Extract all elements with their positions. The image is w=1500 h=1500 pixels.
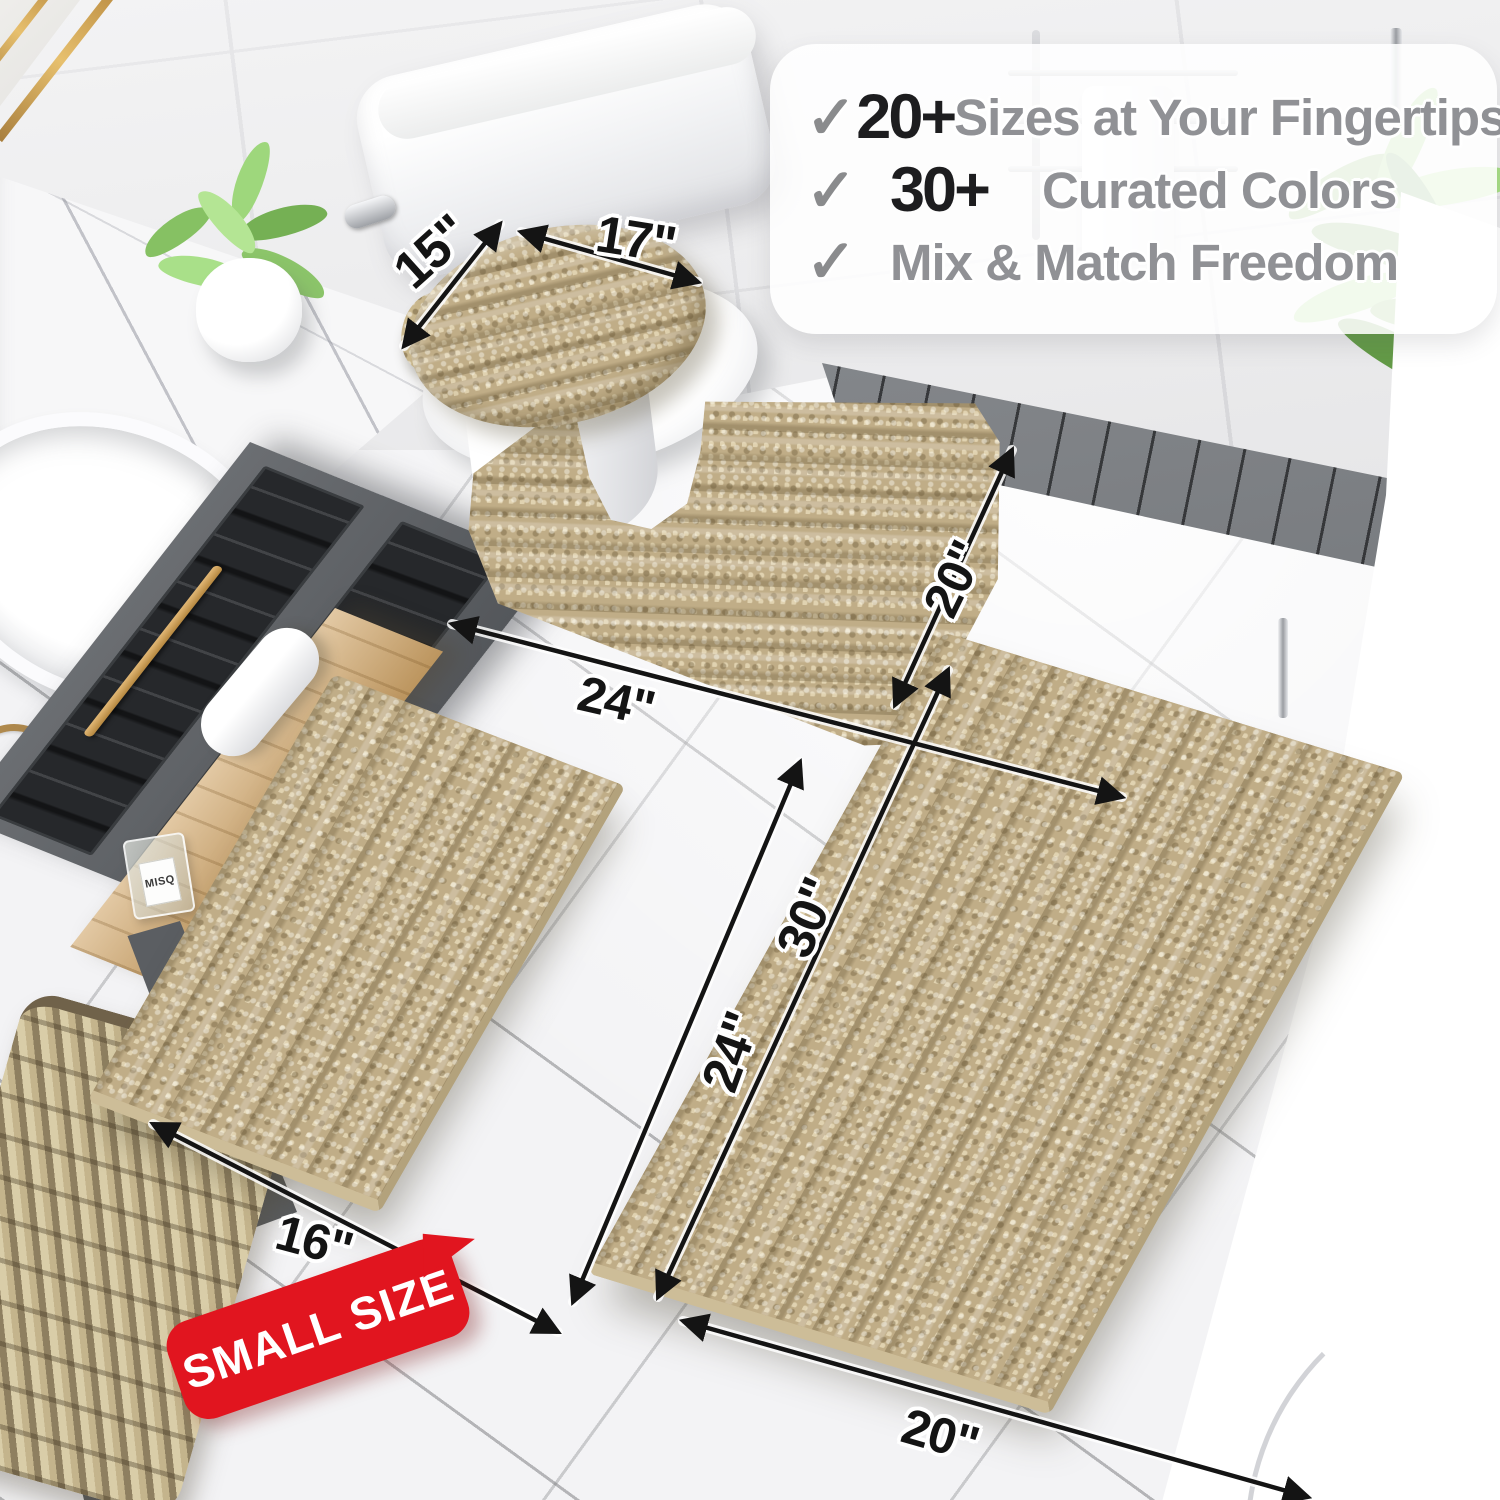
feature-row-sizes: ✓ 20+ Sizes at Your Fingertips	[806, 86, 1497, 149]
feature-row-mix-match: ✓ Mix & Match Freedom	[806, 232, 1497, 292]
checkmark-icon: ✓	[806, 232, 890, 292]
feature-banner: ✓ 20+ Sizes at Your Fingertips ✓ 30+ Cur…	[770, 44, 1497, 334]
checkmark-icon: ✓	[806, 161, 890, 221]
label-lid-length: 17"	[592, 204, 680, 276]
feature-label: Mix & Match Freedom	[890, 237, 1398, 288]
bathroom-product-scene: MISQ	[0, 0, 1500, 1500]
arrow-contour-24	[452, 624, 1122, 797]
feature-label: Sizes at Your Fingertips	[954, 92, 1500, 143]
feature-number: 20+	[856, 86, 954, 149]
feature-row-colors: ✓ 30+ Curated Colors	[806, 159, 1497, 222]
arrow-large-20	[683, 1321, 1308, 1497]
checkmark-icon: ✓	[806, 88, 856, 148]
feature-label: Curated Colors	[1042, 165, 1396, 216]
feature-number: 30+	[890, 159, 1042, 222]
